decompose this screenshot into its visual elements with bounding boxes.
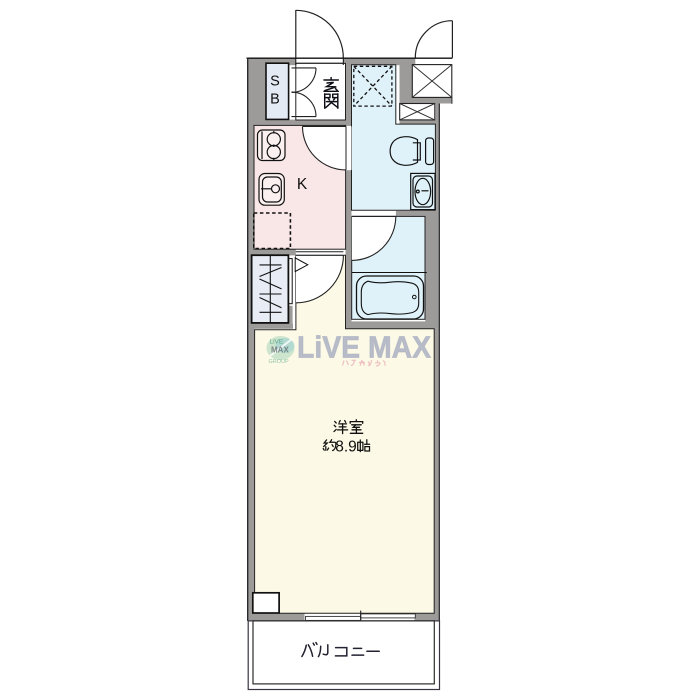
svg-text:S: S: [270, 74, 280, 90]
svg-text:LiVE: LiVE: [270, 339, 284, 346]
svg-text:MAX: MAX: [271, 346, 289, 355]
svg-text:K: K: [297, 176, 308, 193]
svg-text:8.9: 8.9: [335, 438, 357, 455]
svg-text:B: B: [270, 92, 280, 108]
svg-text:GROUP: GROUP: [269, 359, 290, 365]
svg-text:LiVE MAX: LiVE MAX: [297, 330, 431, 365]
